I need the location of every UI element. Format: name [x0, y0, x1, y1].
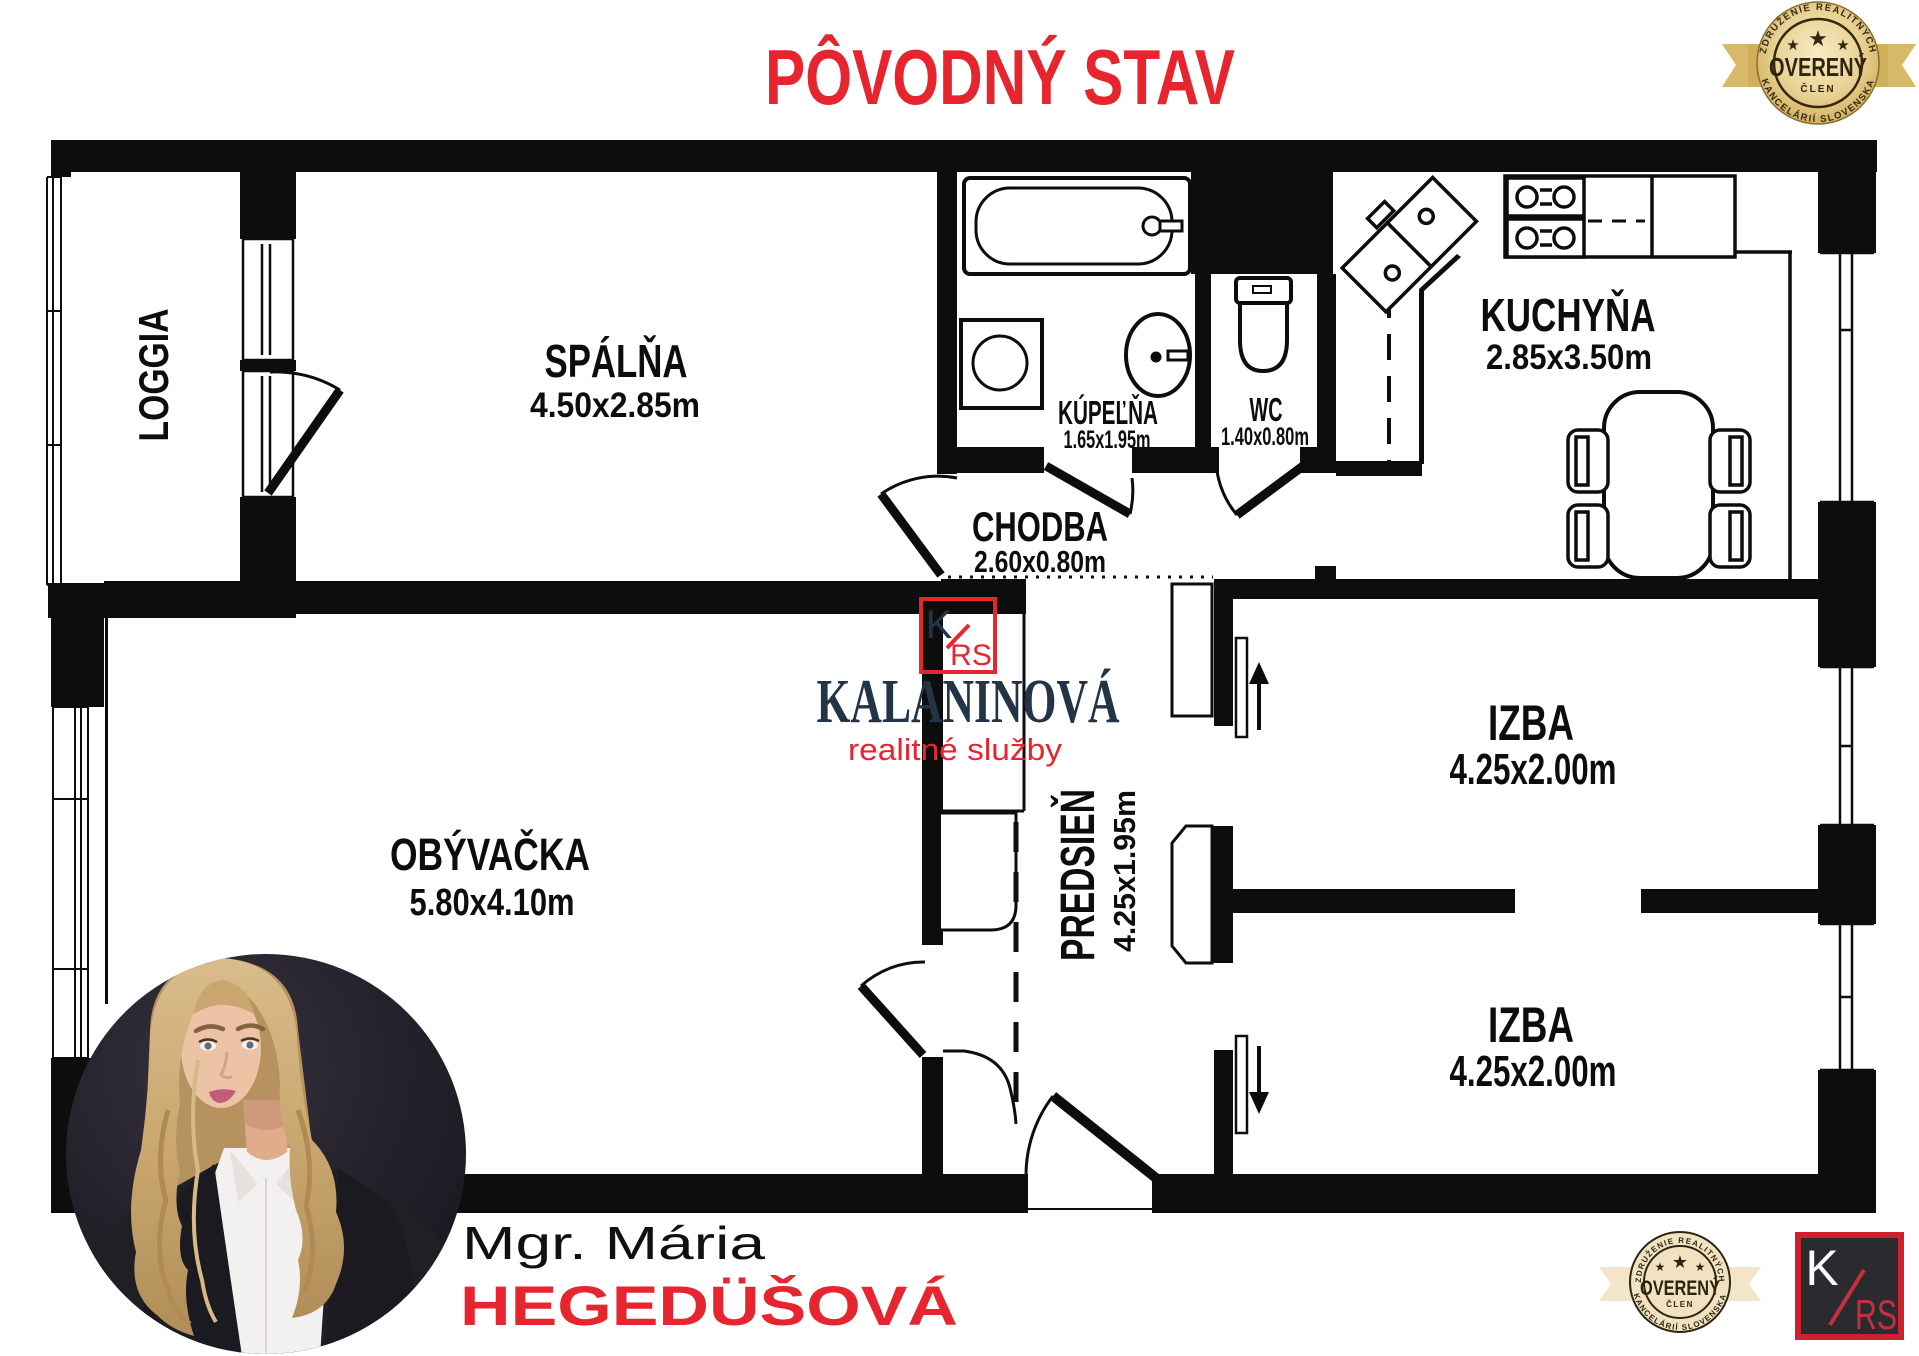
svg-text:2.85x3.50m: 2.85x3.50m [1486, 338, 1652, 377]
svg-text:realitné služby: realitné služby [848, 732, 1063, 767]
svg-text:PÔVODNÝ STAV: PÔVODNÝ STAV [765, 33, 1235, 121]
svg-text:OVERENÝ: OVERENÝ [1640, 1276, 1720, 1300]
svg-text:5.80x4.10m: 5.80x4.10m [410, 882, 575, 924]
svg-text:ČLEN: ČLEN [1666, 1300, 1694, 1309]
svg-text:★: ★ [1655, 1260, 1666, 1274]
svg-text:2.60x0.80m: 2.60x0.80m [974, 544, 1106, 579]
svg-text:OBÝVAČKA: OBÝVAČKA [390, 829, 590, 880]
svg-text:IZBA: IZBA [1488, 997, 1574, 1053]
svg-text:4.25x1.95m: 4.25x1.95m [1107, 790, 1142, 952]
svg-text:★: ★ [1695, 1260, 1706, 1274]
svg-text:LOGGIA: LOGGIA [130, 309, 177, 442]
svg-text:★: ★ [1808, 26, 1828, 51]
svg-text:OVERENÝ: OVERENÝ [1769, 52, 1867, 82]
svg-text:KALANINOVÁ: KALANINOVÁ [817, 668, 1120, 736]
svg-text:IZBA: IZBA [1488, 695, 1574, 751]
svg-text:ČLEN: ČLEN [1800, 82, 1835, 95]
svg-text:K: K [1805, 1240, 1838, 1296]
svg-text:HEGEDÜŠOVÁ: HEGEDÜŠOVÁ [460, 1274, 958, 1337]
svg-text:Mgr. Mária: Mgr. Mária [462, 1217, 766, 1269]
svg-text:KUCHYŇA: KUCHYŇA [1481, 289, 1656, 341]
svg-text:1.40x0.80m: 1.40x0.80m [1221, 423, 1309, 451]
svg-text:4.50x2.85m: 4.50x2.85m [530, 386, 700, 425]
svg-text:1.65x1.95m: 1.65x1.95m [1064, 426, 1151, 454]
svg-text:4.25x2.00m: 4.25x2.00m [1450, 745, 1617, 794]
svg-text:★: ★ [1672, 1252, 1688, 1272]
svg-text:CHODBA: CHODBA [972, 503, 1108, 550]
svg-text:SPÁLŇA: SPÁLŇA [545, 335, 688, 387]
svg-text:PREDSIEŇ: PREDSIEŇ [1050, 789, 1105, 961]
svg-text:K: K [926, 603, 953, 647]
svg-text:4.25x2.00m: 4.25x2.00m [1450, 1047, 1617, 1096]
svg-text:RS: RS [1855, 1291, 1897, 1338]
